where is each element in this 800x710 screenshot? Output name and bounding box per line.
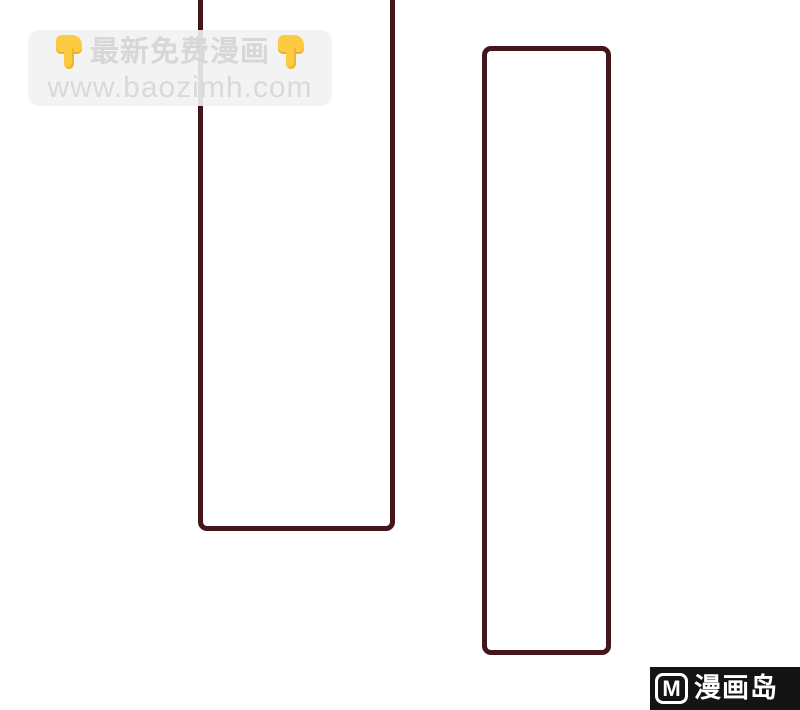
top-watermark-line1: 最新免费漫画 <box>55 33 305 71</box>
bottom-watermark: M 漫画岛 <box>650 667 800 710</box>
top-watermark-text: 最新免费漫画 <box>90 38 270 67</box>
top-watermark-url: www.baozimh.com <box>47 73 312 103</box>
top-watermark: 最新免费漫画 www.baozimh.com <box>28 30 332 106</box>
point-down-hand-icon <box>55 34 83 70</box>
comic-panel-right <box>482 46 611 655</box>
comic-page: 最新免费漫画 www.baozimh.com M 漫画岛 <box>0 0 800 710</box>
manhuadao-logo-icon: M <box>655 673 688 704</box>
bottom-watermark-site-name: 漫画岛 <box>694 675 778 702</box>
point-down-hand-icon <box>277 34 305 70</box>
